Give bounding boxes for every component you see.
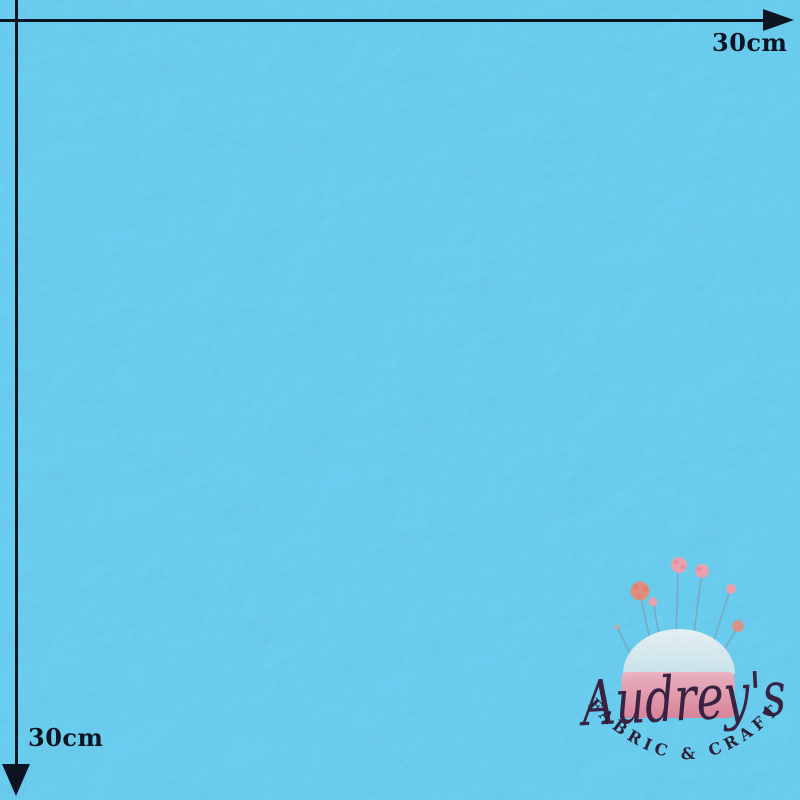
pin-head-pompom-icon bbox=[631, 582, 650, 601]
height-arrowhead-icon bbox=[2, 764, 30, 796]
pin-head-icon bbox=[726, 584, 736, 594]
pin-head-pompom-icon bbox=[695, 564, 709, 578]
width-arrow-line bbox=[0, 19, 768, 22]
height-arrow-line bbox=[15, 0, 18, 764]
height-measurement-label: 30cm bbox=[28, 726, 103, 750]
pin-head-icon bbox=[615, 625, 620, 630]
fabric-swatch-photo: 30cm 30cm bbox=[0, 0, 800, 800]
pin-head-pompom-icon bbox=[671, 557, 687, 573]
pin-heads bbox=[615, 557, 745, 632]
pin-head-icon bbox=[732, 620, 744, 632]
pin-head-icon bbox=[649, 598, 658, 607]
width-measurement-label: 30cm bbox=[712, 31, 787, 55]
pin-stem bbox=[712, 593, 729, 646]
brand-logo-watermark: Audrey's FABRIC & CRAFT bbox=[552, 545, 800, 800]
